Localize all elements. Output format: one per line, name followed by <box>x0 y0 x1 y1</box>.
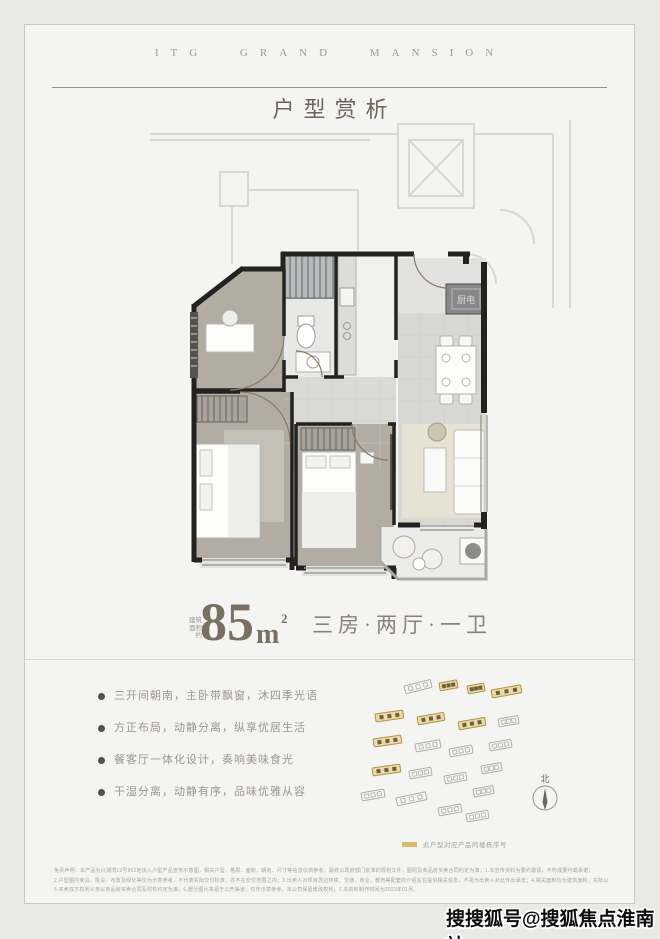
bullet-dot-icon <box>98 757 105 764</box>
siteplan-buildings <box>361 679 522 821</box>
poster-page: ITG GRAND MANSION 户型赏析 <box>0 0 660 939</box>
area-superscript: 2 <box>281 611 288 627</box>
compass: 北 <box>533 774 557 810</box>
siteplan-building <box>489 739 512 751</box>
siteplan-building <box>372 764 401 776</box>
feature-item: 餐客厅一体化设计，奏响美味食光 <box>98 754 318 766</box>
siteplan-building <box>466 810 489 822</box>
disclaimer: 免责声明：本产品为兴湖湾12号902地块入户型产品宣传示意图，相关户型、格局、面… <box>54 867 608 896</box>
siteplan-building <box>373 735 402 747</box>
siteplan-building <box>438 804 462 816</box>
legend-label: 此户型对应产品的楼栋序号 <box>423 839 507 849</box>
siteplan-map: 北 <box>352 670 567 835</box>
siteplan-building <box>481 763 502 774</box>
siteplan-building <box>375 710 404 722</box>
siteplan-building <box>458 717 486 730</box>
feature-text: 方正布局，动静分离，纵享优居生活 <box>114 722 306 734</box>
header-rule <box>52 87 607 88</box>
bullet-dot-icon <box>98 789 105 796</box>
siteplan-building <box>417 712 445 725</box>
feature-text: 三开间朝南，主卧带飘窗，沐四季光语 <box>114 690 318 702</box>
bullet-dot-icon <box>98 693 105 700</box>
siteplan-building <box>396 792 427 806</box>
siteplan-building <box>449 745 473 757</box>
bullet-dot-icon <box>98 725 105 732</box>
disclaimer-line: 5.买卖双方权利义务以商品房买卖合同及附件约定为准；6.部分图片来源于公开渠道，… <box>54 886 608 896</box>
siteplan-building <box>467 683 485 694</box>
siteplan-building <box>491 685 522 698</box>
feature-item: 三开间朝南，主卧带飘窗，沐四季光语 <box>98 690 318 702</box>
disclaimer-line: 2.户型图内家具、陈设、布置及绿化等仅为示意参考，不代表实际交付标准，亦不在交付… <box>54 877 608 887</box>
section-divider <box>24 659 636 660</box>
siteplan-building <box>439 680 458 691</box>
disclaimer-line: 免责声明：本产品为兴湖湾12号902地块入户型产品宣传示意图，相关户型、格局、面… <box>54 867 608 877</box>
feature-text: 干湿分离，动静有序，品味优雅从容 <box>114 786 306 798</box>
siteplan-building <box>473 786 494 797</box>
feature-text: 餐客厅一体化设计，奏响美味食光 <box>114 754 294 766</box>
feature-list: 三开间朝南，主卧带飘窗，沐四季光语 方正布局，动静分离，纵享优居生活 餐客厅一体… <box>98 690 318 818</box>
area-unit: m <box>256 619 279 651</box>
legend-swatch <box>402 842 417 847</box>
siteplan-building <box>415 740 441 752</box>
siteplan-building <box>409 767 432 779</box>
brand-header: ITG GRAND MANSION <box>0 47 660 59</box>
feature-item: 方正布局，动静分离，纵享优居生活 <box>98 722 318 734</box>
siteplan-building <box>361 789 385 801</box>
floorplan: 厨电 <box>80 110 580 598</box>
cabinet-label: 厨电 <box>457 294 475 305</box>
siteplan-building <box>444 772 467 784</box>
siteplan-building <box>498 716 519 727</box>
feature-item: 干湿分离，动静有序，品味优雅从容 <box>98 786 318 798</box>
siteplan-legend: 此户型对应产品的楼栋序号 <box>402 839 507 849</box>
watermark: 搜搜狐号@搜狐焦点淮南站 <box>446 904 660 939</box>
area-value: 85 <box>200 597 254 647</box>
compass-label: 北 <box>540 774 549 784</box>
area-layout: 三房·两厅·一卫 <box>312 609 492 639</box>
siteplan-building <box>404 679 432 693</box>
